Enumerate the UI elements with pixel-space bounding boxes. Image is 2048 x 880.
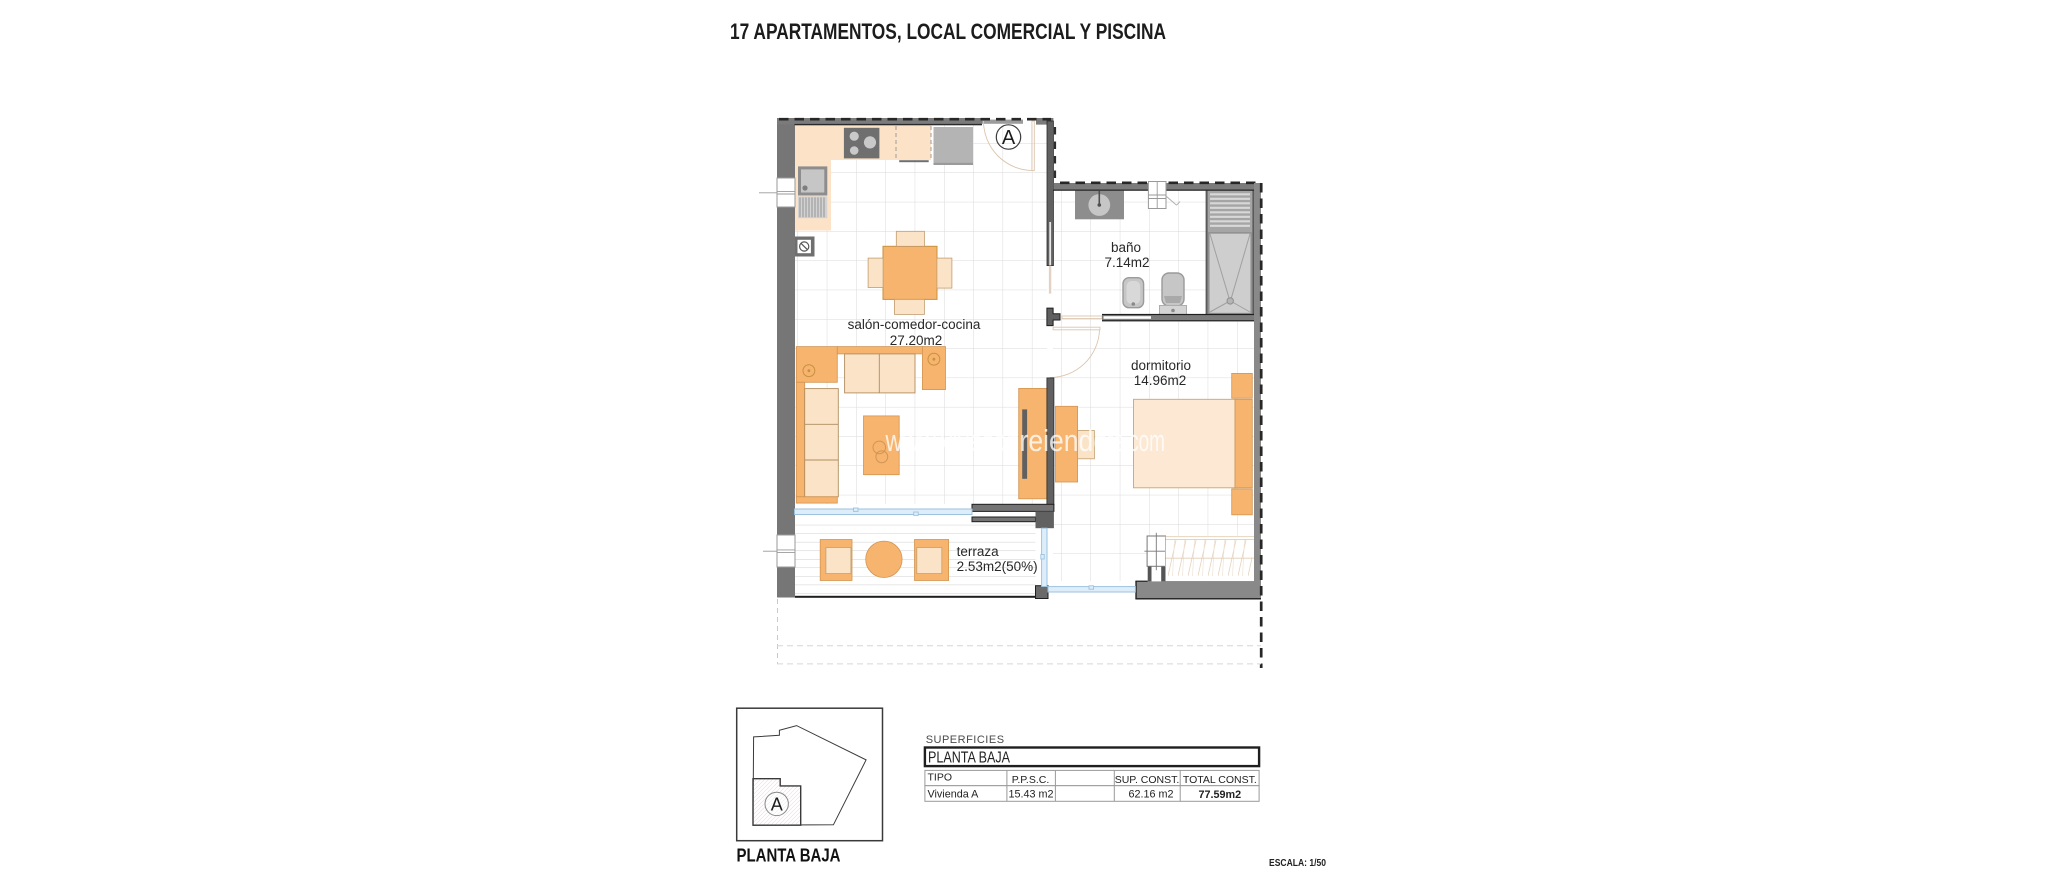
svg-text:PLANTA BAJA: PLANTA BAJA [737, 846, 841, 866]
svg-text:reiendo: reiendo [1020, 423, 1109, 458]
svg-text:PLANTA BAJA: PLANTA BAJA [928, 750, 1011, 767]
svg-text:Vivienda A: Vivienda A [928, 789, 980, 801]
svg-text:A: A [1002, 127, 1016, 149]
svg-text:dormitorio: dormitorio [1131, 358, 1191, 373]
svg-text:SUP. CONST.: SUP. CONST. [1115, 774, 1180, 786]
svg-text:terraza: terraza [957, 544, 1000, 559]
svg-text:baño: baño [1111, 240, 1141, 255]
svg-text:62.16 m2: 62.16 m2 [1128, 789, 1173, 801]
svg-text:17 APARTAMENTOS, LOCAL COMERCI: 17 APARTAMENTOS, LOCAL COMERCIAL Y PISCI… [730, 19, 1166, 44]
svg-text:te.com: te.com [1108, 423, 1165, 458]
svg-text:salón-comedor-cocina: salón-comedor-cocina [848, 317, 981, 332]
svg-text:2.53m2(50%): 2.53m2(50%) [957, 559, 1038, 574]
svg-text:15.43 m2: 15.43 m2 [1009, 789, 1054, 801]
svg-text:TIPO: TIPO [928, 772, 953, 784]
svg-text:77.59m2: 77.59m2 [1198, 789, 1241, 801]
svg-text:14.96m2: 14.96m2 [1134, 373, 1187, 388]
svg-text:TOTAL CONST.: TOTAL CONST. [1183, 774, 1257, 786]
svg-text:A: A [771, 795, 783, 815]
svg-text:ESCALA: 1/50: ESCALA: 1/50 [1269, 857, 1326, 869]
svg-text:P.P.S.C.: P.P.S.C. [1012, 774, 1050, 786]
svg-text:www.viveson: www.viveson [885, 423, 1020, 458]
svg-text:SUPERFICIES: SUPERFICIES [926, 734, 1005, 746]
svg-text:27.20m2: 27.20m2 [890, 333, 943, 348]
svg-text:7.14m2: 7.14m2 [1104, 255, 1149, 270]
